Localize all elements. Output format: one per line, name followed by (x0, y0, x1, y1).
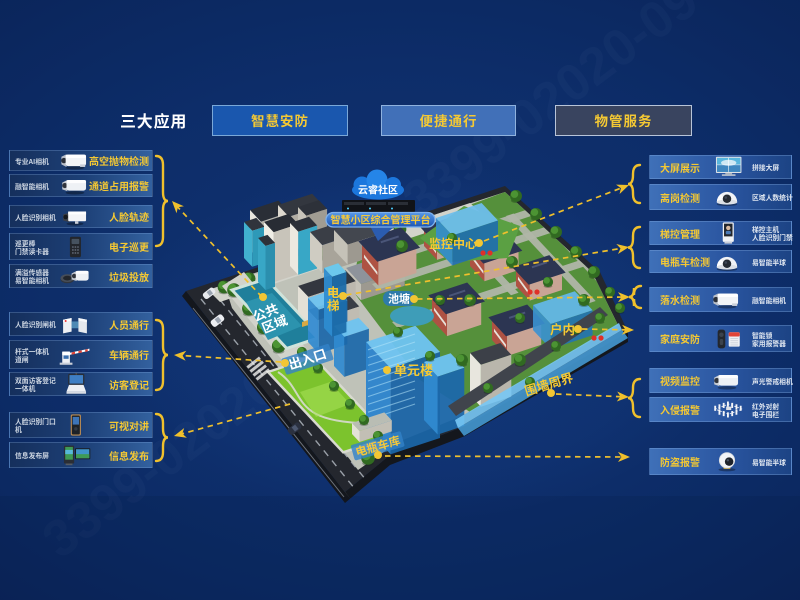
svg-text:云睿社区: 云睿社区 (358, 182, 398, 197)
svg-text:池塘: 池塘 (388, 291, 410, 307)
svg-text:梯: 梯 (327, 295, 340, 314)
svg-text:监控中心: 监控中心 (429, 235, 477, 252)
svg-text:单元楼: 单元楼 (394, 360, 433, 379)
svg-text:智慧小区综合管理平台: 智慧小区综合管理平台 (331, 212, 431, 227)
svg-text:户内: 户内 (550, 319, 575, 338)
